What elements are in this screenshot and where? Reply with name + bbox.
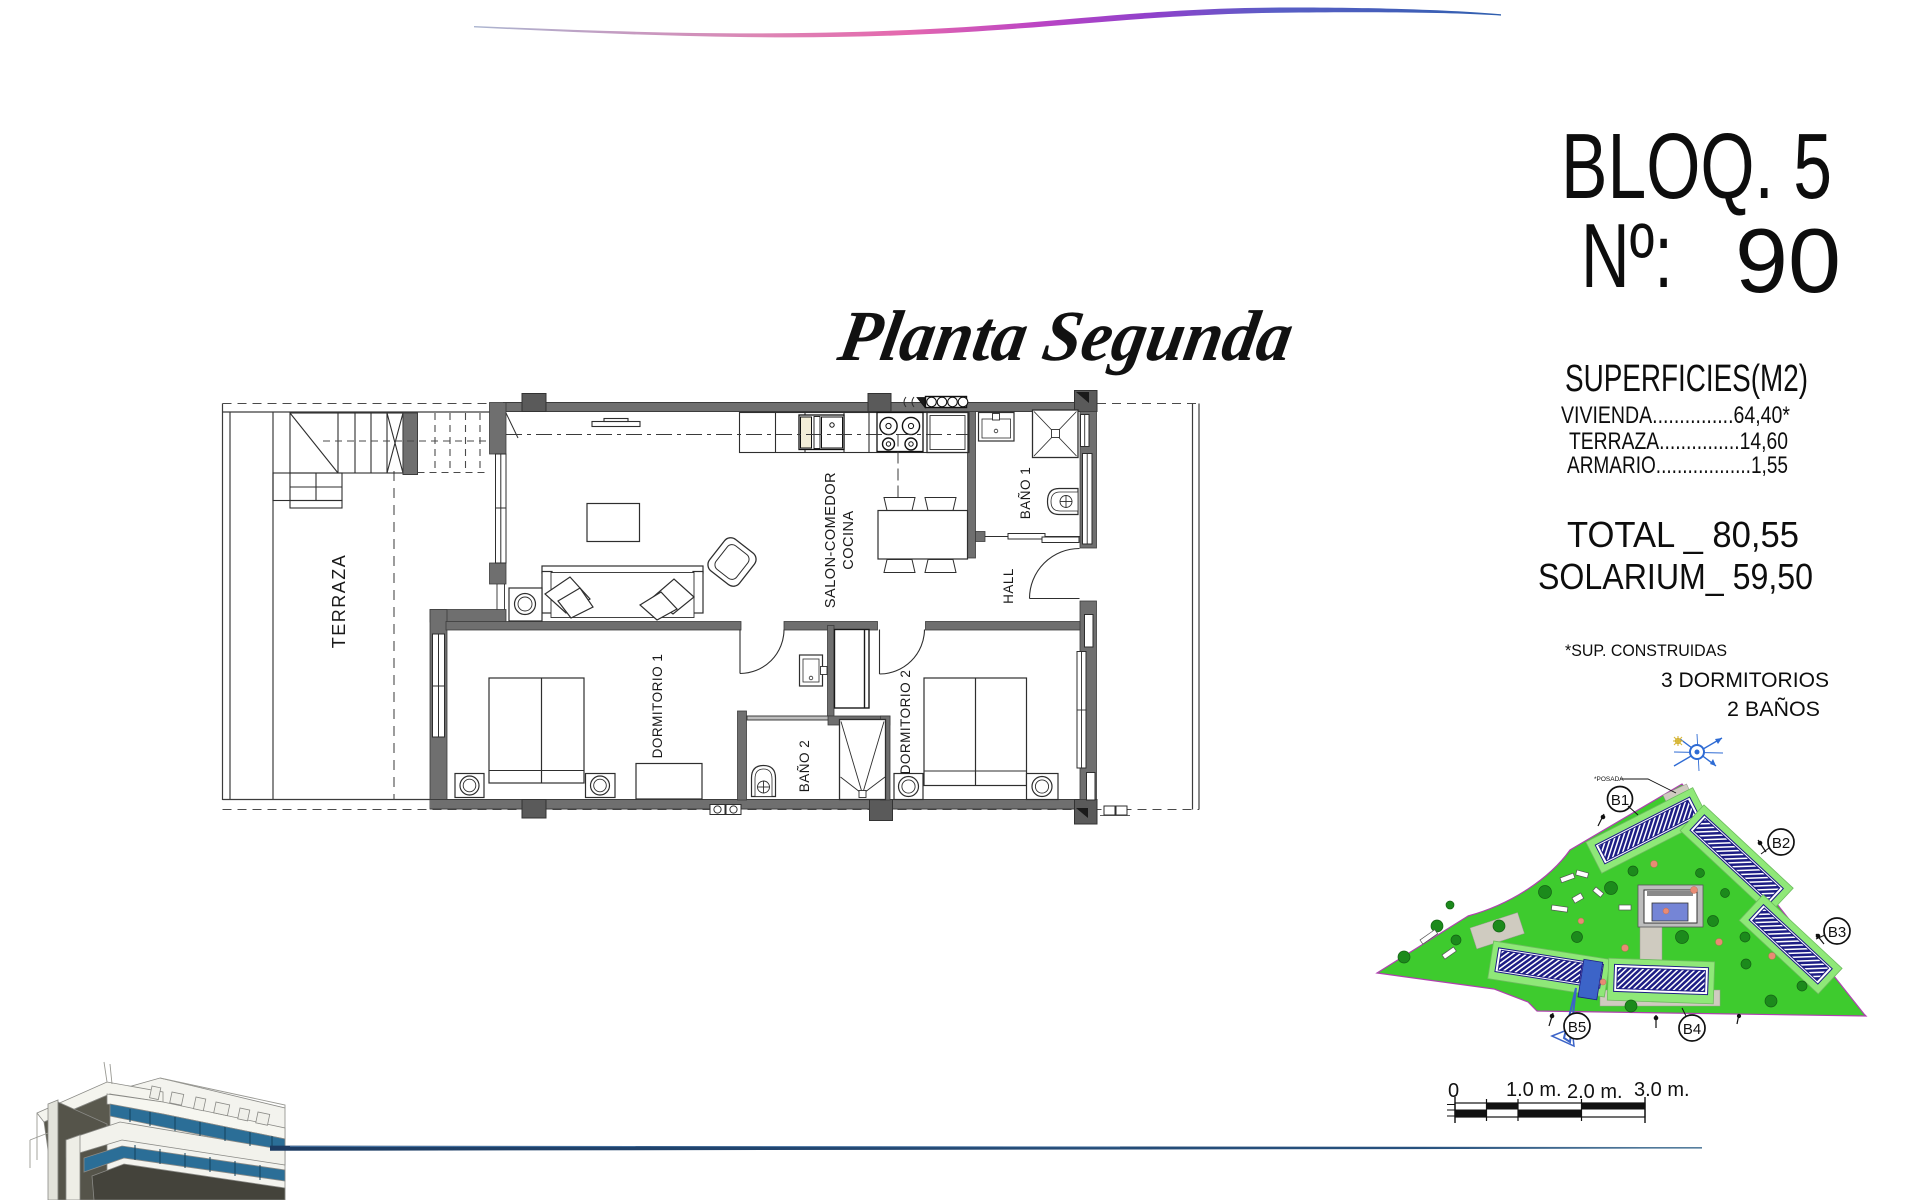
svg-text:2 BAÑOS: 2 BAÑOS (1727, 697, 1820, 721)
svg-text:DORMITORIO 2: DORMITORIO 2 (898, 670, 913, 775)
svg-text:0: 0 (1448, 1080, 1459, 1102)
svg-text:Planta Segunda: Planta Segunda (832, 295, 1299, 375)
svg-text:B3: B3 (1828, 924, 1846, 941)
svg-text:SALON-COMEDOR: SALON-COMEDOR (823, 472, 839, 608)
svg-text:2.0 m.: 2.0 m. (1567, 1081, 1623, 1103)
svg-text:SOLARIUM_ 59,50: SOLARIUM_ 59,50 (1538, 556, 1813, 597)
svg-text:1.0 m.: 1.0 m. (1506, 1079, 1562, 1101)
svg-text:Nº:: Nº: (1581, 206, 1673, 307)
svg-text:90: 90 (1735, 211, 1841, 312)
svg-text:COCINA: COCINA (841, 510, 857, 569)
svg-text:SUPERFICIES(M2): SUPERFICIES(M2) (1565, 358, 1808, 400)
svg-text:*POSADA: *POSADA (1594, 776, 1624, 783)
svg-text:TERRAZA...............14,60: TERRAZA...............14,60 (1569, 428, 1788, 455)
svg-text:HALL: HALL (1001, 568, 1016, 604)
svg-text:VIVIENDA...............64,40*: VIVIENDA...............64,40* (1561, 402, 1790, 429)
svg-text:BAÑO 2: BAÑO 2 (797, 740, 812, 793)
svg-text:TERRAZA: TERRAZA (329, 554, 349, 649)
svg-text:BAÑO 1: BAÑO 1 (1018, 467, 1033, 520)
svg-text:B1: B1 (1611, 792, 1629, 809)
svg-text:DORMITORIO 1: DORMITORIO 1 (650, 654, 665, 759)
svg-text:B5: B5 (1568, 1019, 1586, 1036)
svg-text:3 DORMITORIOS: 3 DORMITORIOS (1661, 669, 1829, 692)
svg-text:B4: B4 (1683, 1021, 1701, 1038)
svg-text:TOTAL _ 80,55: TOTAL _ 80,55 (1567, 514, 1799, 555)
svg-text:3.0 m.: 3.0 m. (1634, 1079, 1690, 1101)
svg-text:B2: B2 (1772, 835, 1790, 852)
svg-text:*SUP. CONSTRUIDAS: *SUP. CONSTRUIDAS (1565, 641, 1727, 660)
svg-text:ARMARIO..................1,55: ARMARIO..................1,55 (1567, 452, 1788, 479)
svg-text:BLOQ. 5: BLOQ. 5 (1561, 114, 1832, 218)
